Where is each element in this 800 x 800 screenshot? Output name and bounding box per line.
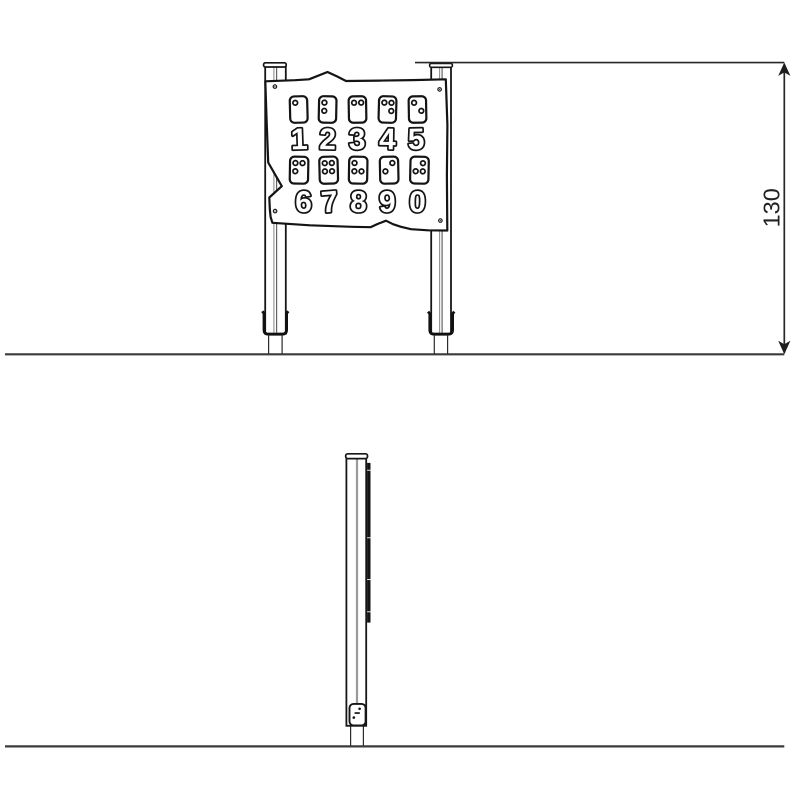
- svg-text:130: 130: [758, 188, 784, 227]
